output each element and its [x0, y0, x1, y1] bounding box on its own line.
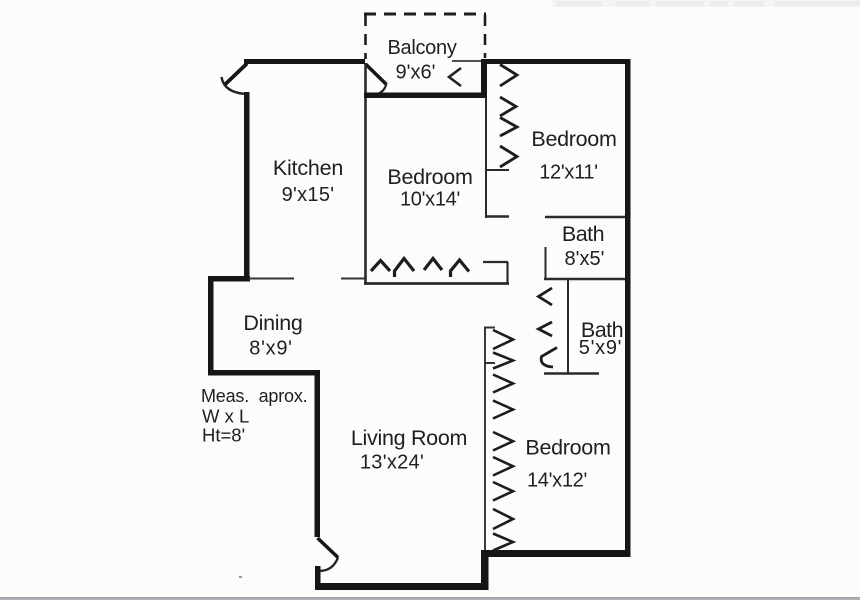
svg-text:Meas. aprox.: Meas. aprox.: [201, 386, 307, 406]
svg-text:8'x9': 8'x9': [249, 338, 292, 360]
svg-text:W x L: W x L: [202, 406, 249, 427]
svg-text:8'x5': 8'x5': [565, 248, 605, 270]
svg-text:Bedroom: Bedroom: [525, 436, 610, 460]
svg-text:14'x12': 14'x12': [527, 470, 587, 492]
svg-text:Bedroom: Bedroom: [531, 127, 616, 151]
svg-text:9'x15': 9'x15': [282, 184, 335, 206]
svg-text:Kitchen: Kitchen: [273, 156, 343, 180]
svg-text:Balcony: Balcony: [387, 37, 456, 59]
svg-text:5'x9': 5'x9': [579, 337, 622, 359]
svg-text:12'x11': 12'x11': [539, 162, 598, 184]
svg-text:Ht=8': Ht=8': [202, 425, 245, 446]
svg-text:Dining: Dining: [243, 311, 302, 335]
svg-text:9'x6': 9'x6': [396, 62, 436, 84]
svg-text:13'x24': 13'x24': [360, 452, 424, 474]
svg-text:Bath: Bath: [562, 222, 604, 246]
svg-text:Bedroom: Bedroom: [387, 165, 472, 189]
svg-text:10'x14': 10'x14': [400, 189, 460, 211]
svg-text:Living Room: Living Room: [351, 426, 467, 450]
